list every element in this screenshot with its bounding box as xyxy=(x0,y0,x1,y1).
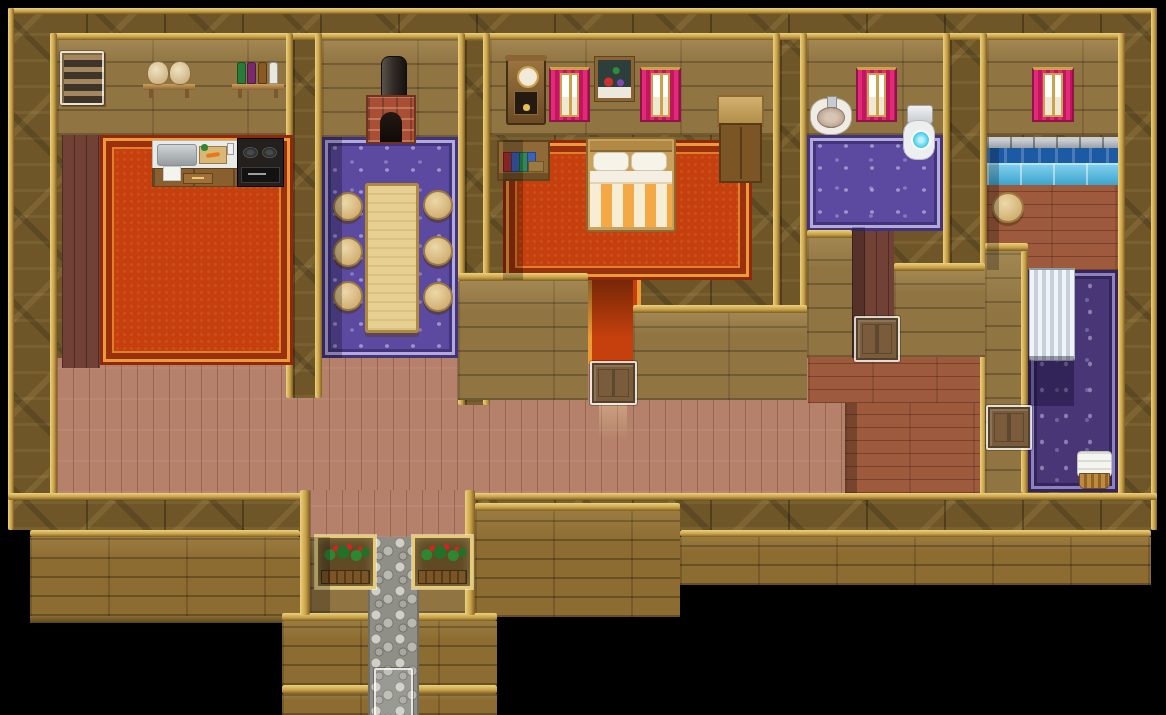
sack-shelf xyxy=(143,58,195,98)
curtain-shadow xyxy=(1028,356,1074,406)
bedroom-door-event[interactable] xyxy=(590,361,637,405)
cutting-board xyxy=(199,146,227,164)
east-hall-floor xyxy=(845,403,988,493)
gold-trim xyxy=(943,33,950,266)
flowers xyxy=(418,541,467,566)
toilet-bowl xyxy=(903,120,935,160)
wall-shadow xyxy=(845,403,857,493)
toilet-window xyxy=(856,67,897,122)
kitchen-dining-wall xyxy=(293,40,315,398)
stove-burner xyxy=(243,147,258,158)
gold-trim xyxy=(1118,33,1125,498)
shelf-leg xyxy=(149,89,153,98)
drawer xyxy=(183,173,213,184)
gold-trim xyxy=(315,33,322,398)
dining-stool xyxy=(423,236,453,266)
book-stack xyxy=(528,161,544,172)
pillow xyxy=(631,152,667,171)
gold-trim xyxy=(807,230,852,238)
toilet-bath-wall xyxy=(950,40,980,266)
wall-shadow xyxy=(987,148,999,270)
bottle-purple xyxy=(247,62,256,84)
wall-shadow xyxy=(310,537,330,613)
gold-trim xyxy=(633,305,807,313)
wall-shadow xyxy=(322,137,342,358)
gold-trim xyxy=(8,493,310,500)
shelf-leg xyxy=(274,89,278,98)
sack xyxy=(169,61,191,85)
south-wall-left xyxy=(30,537,300,616)
clock-face xyxy=(517,66,539,88)
bath-pool-deep-water xyxy=(987,148,1118,163)
south-wall-right xyxy=(680,537,1151,585)
shelf-leg xyxy=(238,89,242,98)
oven-door xyxy=(241,167,280,183)
wardrobe xyxy=(717,95,764,183)
bath-window xyxy=(1032,67,1074,122)
pillow xyxy=(593,152,629,171)
east-hall-floor-upper xyxy=(808,357,988,403)
bottle-shelf xyxy=(232,50,284,98)
doorway-light xyxy=(599,400,627,440)
toilet-south-wall-right xyxy=(894,271,985,357)
gold-trim xyxy=(465,493,1157,500)
gold-trim xyxy=(475,503,680,511)
gold-trim xyxy=(1021,251,1028,493)
double-bed xyxy=(586,137,676,232)
stairs-event[interactable] xyxy=(60,51,104,105)
dining-stool xyxy=(423,282,453,312)
still-life-painting xyxy=(595,57,634,101)
rooms-top-trim xyxy=(50,33,1125,40)
window-pane xyxy=(651,73,670,117)
shelf-leg xyxy=(185,89,189,98)
towel-basket xyxy=(1077,451,1112,489)
outer-trim-left xyxy=(8,8,14,530)
bath-pool-ledge xyxy=(987,137,1118,148)
gold-trim xyxy=(458,273,588,281)
gold-trim xyxy=(50,33,57,500)
salt-shaker xyxy=(227,143,234,155)
basin-bowl xyxy=(817,107,845,128)
striped-blanket xyxy=(590,182,672,227)
window-pane xyxy=(1043,73,1063,117)
wicker-basket xyxy=(1079,473,1110,489)
toilet-water xyxy=(911,130,931,150)
gold-trim xyxy=(894,263,985,271)
bedroom-window-right xyxy=(640,67,681,122)
clock-pendulum xyxy=(523,104,530,111)
south-wall-mid xyxy=(475,511,680,617)
wall-shadow xyxy=(503,140,523,280)
wall-base-beam xyxy=(30,616,300,623)
bottle-brown xyxy=(258,62,267,84)
south-exit-event[interactable] xyxy=(374,668,413,715)
pendulum-clock xyxy=(506,57,546,125)
fireplace xyxy=(366,95,416,144)
event-highlight xyxy=(60,51,104,105)
bottle-white xyxy=(269,62,278,84)
wash-basin xyxy=(810,98,852,135)
carrot xyxy=(206,152,220,158)
gold-trim xyxy=(30,530,300,537)
porch-wall-left xyxy=(300,490,310,615)
clock-body xyxy=(514,91,538,115)
bath-door-event[interactable] xyxy=(986,405,1032,450)
bedroom-south-wall-right xyxy=(633,313,807,400)
dining-table xyxy=(365,183,419,333)
hand-towel xyxy=(163,166,181,181)
outer-trim-right xyxy=(1151,8,1157,530)
flower-box-right[interactable] xyxy=(412,535,473,589)
kitchen-lower-cabinet xyxy=(152,168,239,187)
headboard xyxy=(590,141,672,152)
bed-sheet xyxy=(590,171,672,182)
window-pane xyxy=(867,73,886,117)
planter-box xyxy=(418,570,467,584)
toilet xyxy=(903,105,935,162)
dining-stool xyxy=(423,190,453,220)
cooking-stove xyxy=(237,138,284,187)
bedroom-window-left xyxy=(549,67,590,122)
toilet-south-wall-left xyxy=(807,238,852,357)
sack xyxy=(147,61,169,85)
bottle-green xyxy=(237,62,246,84)
outer-trim-top xyxy=(8,8,1157,14)
gold-trim xyxy=(680,530,1151,537)
window-pane xyxy=(560,73,579,117)
shower-curtain xyxy=(1029,268,1075,361)
bath-pool-tiles xyxy=(987,163,1118,185)
broccoli xyxy=(201,144,208,151)
wardrobe-doors xyxy=(719,123,762,183)
porch-floor xyxy=(310,490,465,538)
stove-burner xyxy=(262,147,277,158)
door-alcove-shadow xyxy=(588,280,633,338)
game-map: Top-down RPG house interior map xyxy=(0,0,1166,715)
hallway-door-event[interactable] xyxy=(854,316,900,362)
kitchen-sink xyxy=(157,144,197,166)
bedroom-south-wall-left xyxy=(458,281,588,400)
